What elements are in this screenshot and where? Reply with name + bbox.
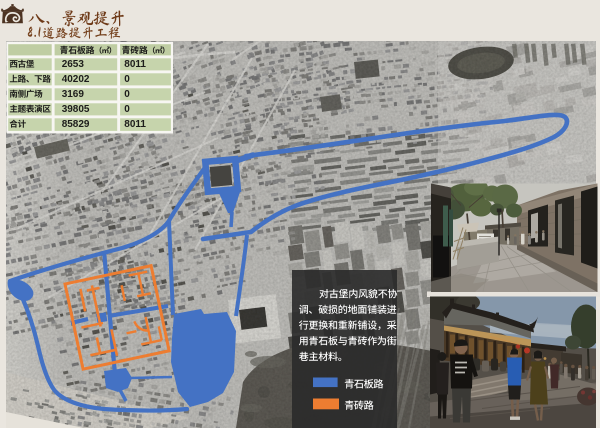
svg-text:2653: 2653 [62, 59, 85, 70]
svg-text:85829: 85829 [62, 119, 90, 130]
svg-text:8011: 8011 [124, 119, 146, 130]
svg-text:0: 0 [124, 104, 130, 115]
svg-text:0: 0 [124, 74, 130, 85]
svg-text:39805: 39805 [62, 104, 90, 115]
svg-text:0: 0 [124, 89, 130, 100]
svg-text:40202: 40202 [62, 74, 90, 85]
svg-text:3169: 3169 [62, 89, 85, 100]
svg-text:8011: 8011 [124, 59, 146, 70]
